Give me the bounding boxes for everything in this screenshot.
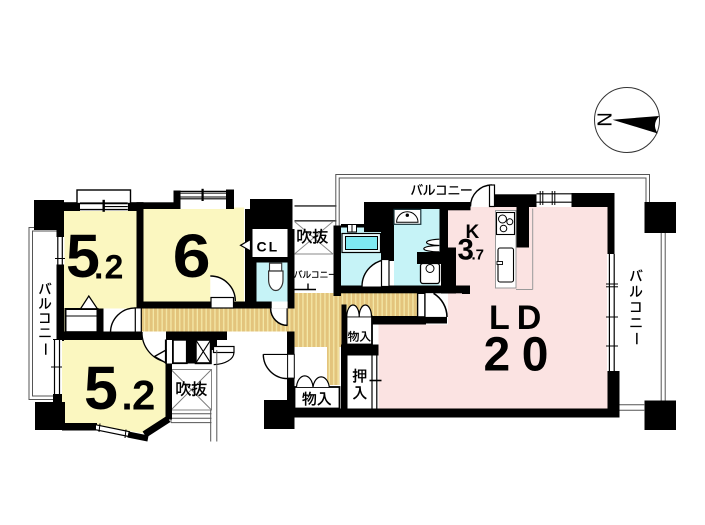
svg-text:6: 6 (173, 222, 211, 290)
svg-text:5: 5 (84, 354, 118, 422)
svg-text:20: 20 (484, 329, 560, 382)
svg-text:CL: CL (257, 239, 280, 255)
svg-text:.: . (122, 375, 133, 419)
svg-text:2: 2 (132, 372, 155, 419)
svg-text:N: N (593, 112, 615, 126)
svg-text:2: 2 (105, 249, 124, 287)
svg-text:.7: .7 (472, 247, 485, 264)
svg-text:.: . (94, 249, 103, 287)
